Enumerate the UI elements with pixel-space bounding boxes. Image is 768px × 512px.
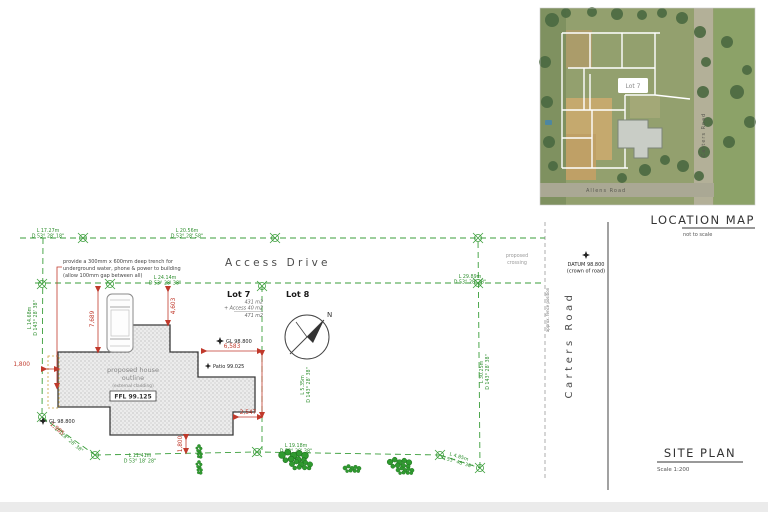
location-map-title-block: LOCATION MAP not to scale [650,213,755,238]
fence-position-note: approx. fence position [545,287,550,332]
dim-7689: 7,689 [90,310,96,327]
lot7-area: 431 m2 [245,300,263,306]
lot8-name: Lot 8 [286,289,310,299]
bearing-lotline-dir: D 143° 28' 38" [306,367,312,403]
trench-note-line3: (allow 100mm gap between all) [63,273,142,279]
location-map-subtitle: not to scale [683,232,712,238]
bearing-top2-length: L 20.56m [176,228,199,234]
house-label-2: outline [122,374,144,382]
gl-bottom-label: GL 98.800 [49,419,75,425]
aerial-allens-road-label: Allens Road [586,188,626,194]
north-label: N [327,311,332,319]
site-plan-drawing: L 17.27m D 53° 28' 18" L 20.56m D 53° 28… [13,222,743,490]
access-drive-label: Access Drive [225,257,331,269]
bearing-access1-length: L 24.14m [154,275,177,281]
aerial-road-bottom [540,183,714,197]
drawing: Lot 7 Carters Road Allens Road LOCATION … [0,0,768,512]
dim-2547: 2,547 [240,410,257,416]
datum-marker: DATUM 98.800 (crown of road) [567,251,605,275]
datum-sublabel: (crown of road) [567,269,605,275]
bearing-access1-dir: D 53° 28' 38" [149,281,182,287]
bearing-top1-dir: D 53° 28' 18" [32,234,65,240]
lot7-label-block: Lot 7 431 m2 + Access 40 m2 471 m2 [224,289,263,319]
site-plan-scale: Scale 1:200 [657,467,690,473]
bearing-access2-dir: D 53° 28' 38" [454,280,487,286]
lot7-name: Lot 7 [227,289,251,299]
datum-label: DATUM 98.800 [568,262,605,268]
site-plan-sheet: Lot 7 Carters Road Allens Road LOCATION … [0,0,768,512]
trench-note-line2: underground water, phone & power to buil… [63,266,181,272]
dim-1800-left: 1,800 [13,362,30,368]
bearing-top1-length: L 17.27m [37,228,60,234]
bearing-left-length: L 14.68m [27,306,33,329]
aerial-lot7-label: Lot 7 [626,83,641,90]
patio-level-label: Patio 99.025 [213,364,244,370]
dim-4603: 4,603 [171,297,177,314]
proposed-crossing-note: proposed crossing [506,253,528,266]
gl-top-label: GL 98.800 [226,339,252,345]
house-label-1: proposed house [107,366,159,374]
house-label-3: (external cladding) [112,383,154,389]
ffl-label: FFL 99.125 [114,394,151,401]
bearing-left-dir: D 143° 28' 38" [33,300,39,336]
aerial-pool [545,120,552,125]
car [107,294,133,352]
location-map-title: LOCATION MAP [650,213,755,227]
crossing-line2: crossing [507,260,527,266]
page-bottom-edge [0,502,768,512]
bearing-bottom2-length: L 19.18m [285,443,308,449]
bearing-access2-length: L 29.89m [459,274,482,280]
bearing-right-length: L 30.25m [479,360,485,383]
lot7-access-area: + Access 40 m2 [224,306,263,312]
bearing-top2-dir: D 53° 28' 58" [171,234,204,240]
north-compass: N [285,311,332,359]
location-map-aerial: Lot 7 Carters Road Allens Road [539,7,756,205]
site-plan-title: SITE PLAN [664,446,736,460]
bearing-bottom1-dir: D 53° 18' 28" [124,459,157,465]
crossing-line1: proposed [506,253,528,259]
bearing-lotline-length: L 5.35m [300,375,306,395]
bearing-bottom1-length: L 11.41m [129,453,152,459]
carters-road-label: Carters Road [564,292,575,399]
bearing-right-dir: D 143° 28' 38" [485,354,491,390]
trench-note-line1: provide a 300mm x 600mm deep trench for [63,259,174,265]
dim-1800-bottom: 1,800 [178,435,184,452]
aerial-carters-road-label: Carters Road [701,113,707,157]
site-plan-title-block: SITE PLAN Scale 1:200 [657,446,743,473]
lot7-total-area: 471 m2 [245,313,263,319]
